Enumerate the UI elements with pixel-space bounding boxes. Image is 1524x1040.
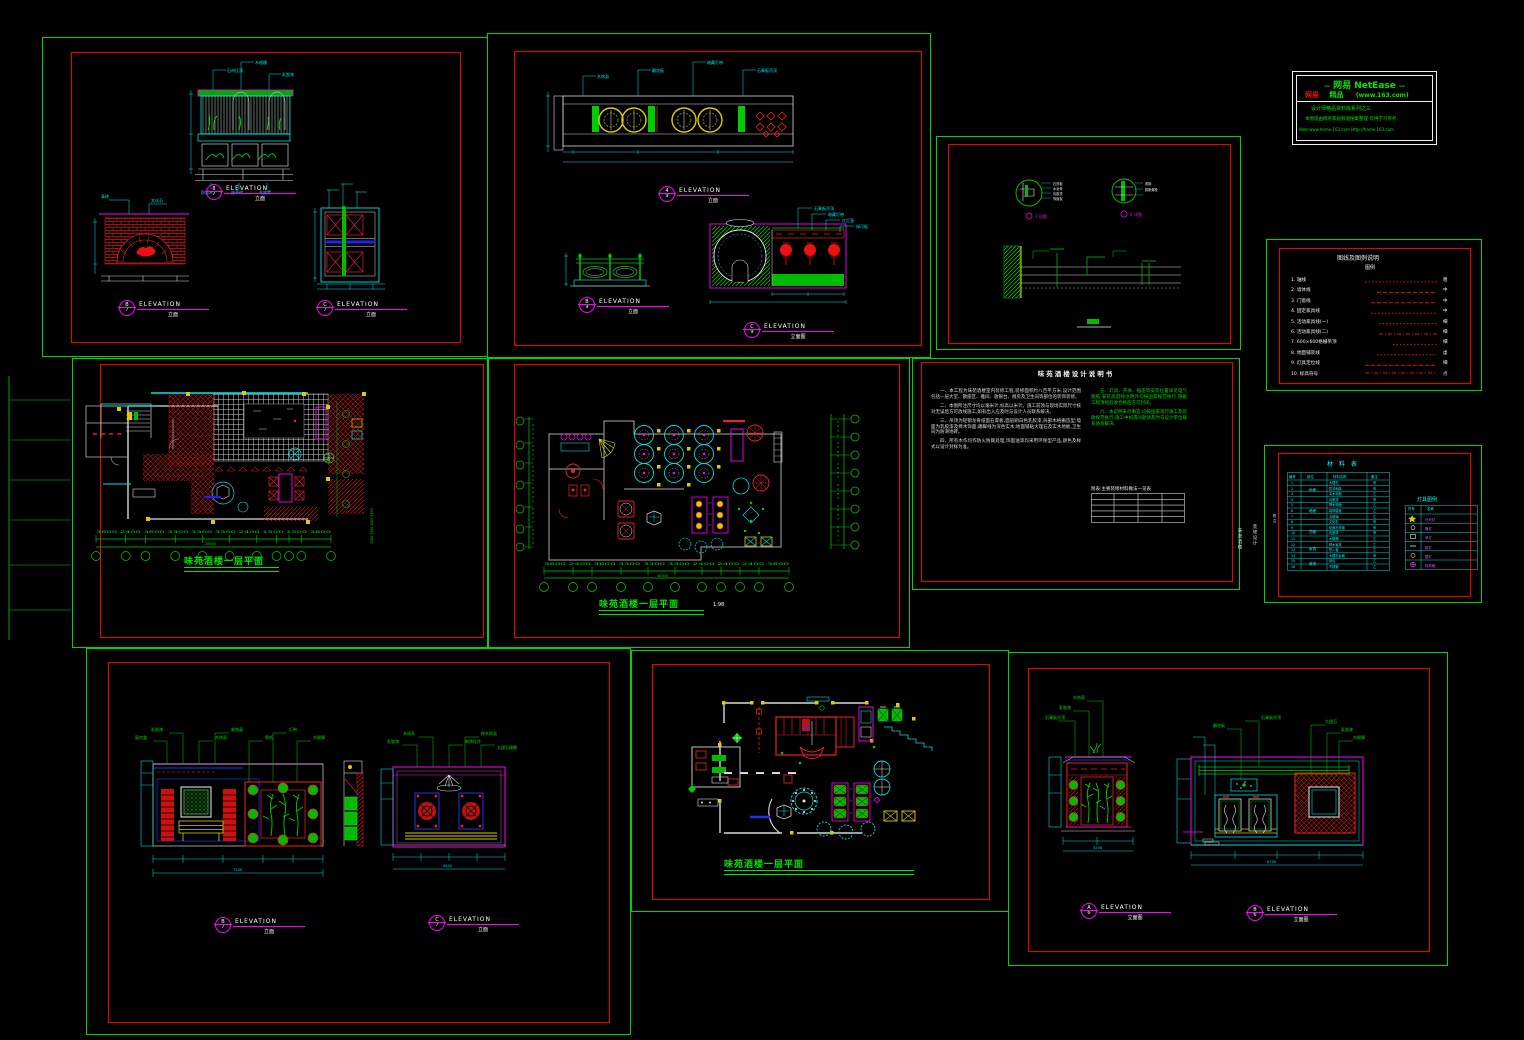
- elevation-scale: 立面图: [1265, 915, 1337, 923]
- svg-text:青砖: 青砖: [101, 193, 109, 199]
- booths: [692, 497, 728, 533]
- symbol-fluorescent: [1408, 515, 1416, 522]
- svg-text:角钢: 角钢: [1145, 181, 1151, 186]
- svg-text:木饰面: 木饰面: [1073, 694, 1085, 700]
- left-reference-dims: [4, 370, 74, 650]
- title-block-divider: [1297, 101, 1432, 102]
- sheet-elevations-3: 窗帘盒 乳胶漆 木饰面 装饰画 壁纸 灯带 木踢脚 7200: [86, 648, 631, 1035]
- cabinet-elevation: [313, 184, 385, 289]
- elevation-bubble: B7: [215, 917, 231, 933]
- booth-seating: [832, 783, 870, 821]
- schedule-zone-wall: 墙面: [1309, 509, 1316, 514]
- side-label-type: 装修设计: [1251, 524, 1257, 546]
- svg-text:乳胶漆: 乳胶漆: [1053, 191, 1063, 196]
- elevation-bubble: B7: [119, 300, 135, 316]
- svg-text:乳胶漆: 乳胶漆: [1341, 726, 1353, 732]
- legend-header-sym: 符号: [1408, 506, 1415, 511]
- elevation-label: B6 ELEVATION立面图: [1247, 905, 1337, 923]
- elevation-label: C7 ELEVATION立面: [317, 300, 407, 318]
- svg-text:木龙骨: 木龙骨: [1053, 186, 1063, 191]
- sheet-elevations-2: 木饰面 雕花板 暗藏灯带 石膏板吊顶: [487, 33, 931, 358]
- svg-text:1500 2900 2900 4300 2900 1200: 1500 2900 2900 4300 2900 1200: [836, 421, 840, 541]
- svg-text:28500: 28500: [205, 542, 216, 546]
- cad-canvas: 石材压顶 木格栅 乳胶漆 防腐木 嵌草砖 木座凳 青砖 文化石: [0, 0, 1524, 1040]
- svg-text:装饰挂件: 装饰挂件: [465, 738, 481, 744]
- detail-circle-2: 角钢 膨胀螺栓 2 详图: [1112, 179, 1159, 217]
- leader-annotations: [153, 733, 311, 782]
- elevation-title: ELEVATION: [762, 322, 834, 332]
- svg-text:大理石踢脚: 大理石踢脚: [497, 744, 517, 750]
- private-room: [859, 707, 932, 751]
- yellow-base-stripes: [405, 833, 497, 839]
- lanterns: [780, 243, 840, 265]
- cabinet-doors: [1215, 795, 1277, 837]
- svg-text:乳胶漆: 乳胶漆: [387, 738, 399, 744]
- svg-text:乳胶漆: 乳胶漆: [151, 726, 163, 732]
- service-wall-elevation: 雕花板 石膏板吊顶 大理石 乳胶漆 木踢脚 8700: [1177, 714, 1365, 865]
- svg-text:木踢脚: 木踢脚: [1353, 734, 1365, 740]
- svg-text:窗帘盒: 窗帘盒: [135, 734, 147, 740]
- svg-text:3300 3300 4200 3300: 3300 3300 4200 3300: [370, 509, 374, 545]
- svg-text:雕花板: 雕花板: [1213, 722, 1225, 728]
- elevation-bubble: C9: [744, 322, 760, 338]
- schedule-zone-floor: 地面: [1309, 488, 1316, 493]
- svg-text:木线条: 木线条: [403, 730, 415, 736]
- schedule-header-zone: 部位: [1307, 474, 1314, 479]
- svg-text:乳胶漆: 乳胶漆: [1059, 704, 1071, 710]
- plan-title-underline: [599, 610, 704, 615]
- brand-dash-left: —: [1324, 83, 1330, 90]
- sheet-details: 石膏板 木龙骨 乳胶漆 饰面板 1 详图 角钢 膨胀螺栓 2 详图: [936, 136, 1241, 350]
- sheet-furniture-plan: 味苑酒楼一层平面: [631, 650, 1009, 912]
- elevation-scale: 立面: [224, 194, 296, 202]
- notes-title: 味苑酒楼设计说明书: [913, 368, 1239, 378]
- svg-text:石膏板吊顶: 石膏板吊顶: [1261, 714, 1281, 720]
- dims-bottom: 3600 2400 3600 3300 3300 3300 2400 2400 …: [540, 562, 794, 592]
- svg-text:1 详图: 1 详图: [1035, 213, 1047, 219]
- elevation-bubble: C7: [429, 915, 445, 931]
- svg-text:红灯笼: 红灯笼: [842, 217, 854, 223]
- svg-text:2 详图: 2 详图: [1130, 211, 1142, 217]
- elevation-bubble: B9: [579, 297, 595, 313]
- svg-text:木格栅: 木格栅: [255, 59, 267, 65]
- svg-text:暗藏灯带: 暗藏灯带: [828, 211, 844, 217]
- elevation-scale: 立面图: [762, 332, 834, 340]
- schedule-side-note: 附注: [1273, 514, 1278, 523]
- moon-gate-elevation: 石膏板吊顶 暗藏灯带 红灯笼 绿可板: [710, 205, 868, 304]
- bamboo-panel: [245, 782, 321, 846]
- svg-text:30300: 30300: [657, 574, 668, 578]
- plan-title-underline: [184, 567, 279, 572]
- elevation-scale: 立面: [233, 927, 305, 935]
- elevation-title: ELEVATION: [224, 184, 296, 194]
- dimension-chain-bottom: 3600 2400 3600 3300 3300 3300 2400 1500 …: [92, 509, 375, 561]
- tb-line4: 本图纸由网易家居频道搜集整理 仅供学习参考: [1305, 116, 1396, 122]
- elevation-label: B9 ELEVATION立面: [579, 297, 669, 315]
- notes-right-column: 五、灯具、开关、插座等安装位置详见电气图纸,安装高度除注明外均按国家规范执行,隐…: [1091, 389, 1187, 427]
- tb-line5: Web:www.home.163.com Http://home.163.com: [1299, 127, 1394, 132]
- elevation-scale: 立面: [597, 307, 669, 315]
- elevation-bubble: B6: [1247, 905, 1263, 921]
- side-label-project: 味苑酒楼: [1236, 528, 1242, 550]
- sheet-elevations-1: 石材压顶 木格栅 乳胶漆 防腐木 嵌草砖 木座凳 青砖 文化石: [42, 37, 488, 357]
- svg-text:灯带: 灯带: [289, 726, 297, 732]
- screen-elevation: 3200 石膏板吊顶 乳胶漆 木饰面: [1045, 694, 1135, 851]
- long-wall-elevation: 木饰面 雕花板 暗藏灯带 石膏板吊顶: [546, 59, 793, 162]
- symbol-pendant: [1411, 535, 1416, 539]
- svg-text:暗藏灯带: 暗藏灯带: [707, 59, 723, 65]
- symbol-exhaust-fan: [1411, 562, 1416, 567]
- reception-tables: [561, 434, 591, 451]
- sheet-design-notes: 味苑酒楼设计说明书 一、本工程为味苑酒楼室内装修工程,装修面积约八百平方米,设计…: [912, 358, 1240, 590]
- elevation-label: C9 ELEVATION立面图: [744, 322, 834, 340]
- svg-text:壁纸: 壁纸: [265, 734, 273, 740]
- svg-text:文化石: 文化石: [151, 197, 163, 203]
- svg-text:木饰面: 木饰面: [215, 734, 227, 740]
- notes-paragraph: 三、吊顶为轻钢龙骨纸面石膏板,面层刷白色乳胶漆,局部木格栅造型;墙面为乳胶漆及榉…: [931, 419, 1081, 437]
- title-block: — 网易 NetEase — 网易 精品 (www.163.com) 设计师精品…: [1292, 71, 1437, 145]
- elevation-title: ELEVATION: [447, 915, 519, 925]
- dims-right: 1500 2900 2900 4300 2900 1200: [831, 414, 859, 549]
- sheet-i-drawing: 窗帘盒 乳胶漆 木饰面 装饰画 壁纸 灯带 木踢脚 7200: [87, 649, 632, 1036]
- svg-text:石材压顶: 石材压顶: [227, 67, 243, 73]
- elevation-title: ELEVATION: [233, 917, 305, 927]
- sub-mid: 精品: [1329, 91, 1343, 99]
- sheet-material-schedule: 材 料 表 编号 部位 材料名称 备注 1 2 3 4 5 6 7 8 9 10…: [1264, 445, 1482, 603]
- brick-arch-elevation: 青砖 文化石: [93, 193, 189, 281]
- bar-elevation: 石材压顶 木格栅 乳胶漆 防腐木 嵌草砖 木座凳: [189, 59, 294, 195]
- plan-scale: 1:98: [713, 602, 724, 608]
- sheet-ceiling-plan: 2100 3300 2400 2400 3300 2100 1500 2900 …: [488, 358, 910, 648]
- sheet-c-drawing: 石膏板 木龙骨 乳胶漆 饰面板 1 详图 角钢 膨胀螺栓 2 详图: [937, 137, 1242, 351]
- lighting-legend-title: 灯具图例: [1417, 496, 1437, 503]
- svg-text:木饰面: 木饰面: [597, 73, 609, 79]
- svg-text:7200: 7200: [233, 868, 243, 872]
- right-wall-elevation: 乳胶漆 木线条 装饰挂件 榉木饰面 大理石踢脚 4600: [381, 730, 517, 869]
- ceiling-fans: [635, 426, 721, 487]
- svg-text:4600: 4600: [443, 864, 453, 868]
- sub-site: (www.163.com): [1356, 92, 1409, 99]
- special-medallions: [723, 421, 782, 494]
- elevation-title: ELEVATION: [137, 300, 209, 310]
- svg-text:大理石: 大理石: [1325, 718, 1337, 724]
- svg-text:装饰画: 装饰画: [231, 726, 243, 732]
- schedule-header-no: 编号: [1289, 474, 1296, 479]
- elevation-title: ELEVATION: [1099, 903, 1171, 913]
- elevation-label: B7 ELEVATION立面: [215, 917, 305, 935]
- svg-text:8700: 8700: [1267, 860, 1277, 864]
- notes-paragraph: 四、所有木作均作防火防腐处理,饰面油漆均采用环保型产品,颜色及样式以设计封样为准…: [931, 439, 1081, 451]
- notes-table: [1091, 493, 1185, 523]
- svg-text:3600 2400 3600 3300 3300 3300: 3600 2400 3600 3300 3300 3300 2400 1500 …: [96, 530, 331, 534]
- dims-left: 2100 3300 2400 2400 3300 2100: [516, 417, 535, 551]
- elevation-scale: 立面: [335, 310, 407, 318]
- schedule-title: 材 料 表: [1327, 459, 1359, 468]
- svg-text:乳胶漆: 乳胶漆: [282, 71, 294, 77]
- elevation-label: A6 ELEVATION立面图: [1081, 903, 1171, 921]
- svg-text:3200: 3200: [1093, 846, 1103, 850]
- elevation-label: B7 ELEVATION立面: [119, 300, 209, 318]
- brand-subline: 网易 精品 (www.163.com): [1305, 90, 1409, 100]
- schedule-col-note: 甲 甲 乙 甲 乙 乙 乙 甲 甲 甲 乙 乙 乙 甲 乙 乙: [1373, 481, 1385, 571]
- svg-text:2100 3300 2400 2400 3300 2100: 2100 3300 2400 2400 3300 2100: [531, 424, 535, 544]
- narrow-section: [344, 761, 363, 846]
- svg-text:石膏板: 石膏板: [1053, 181, 1063, 186]
- svg-text:雕花板: 雕花板: [652, 67, 664, 73]
- symbol-downlight: [1411, 526, 1415, 530]
- legend-codes: 粗 中 中 中 细 细 细 虚 细 点: [1443, 276, 1463, 380]
- notes-left-column: 一、本工程为味苑酒楼室内装修工程,装修面积约八百平方米,设计范围包括一层大堂、散…: [931, 389, 1081, 451]
- schedule-col-name: 大理石 防滑地砖 实木地板 乳胶漆 榉木饰面 装饰壁纸 清玻璃 文化石 纸面石膏…: [1329, 481, 1365, 571]
- ornate-panel: [415, 793, 483, 829]
- section-detail: [1004, 246, 1181, 327]
- elevation-title: ELEVATION: [677, 186, 749, 196]
- notes-table-caption: 附表:主要装修材料做法一览表: [1091, 486, 1151, 492]
- svg-text:膨胀螺栓: 膨胀螺栓: [1145, 187, 1159, 192]
- elevation-label: C7 ELEVATION立面: [429, 915, 519, 933]
- plan-title: 味苑酒楼一层平面: [599, 597, 679, 610]
- plan-title-underline: [724, 870, 914, 875]
- chandelier: [437, 775, 461, 791]
- schedule-zone-ceiling: 顶面: [1309, 530, 1316, 535]
- notes-paragraph: 二、本图所注尺寸均以毫米计,标高以米计。施工前须与现场实际尺寸核对无误后方可放线…: [931, 404, 1081, 416]
- notes-paragraph: 一、本工程为味苑酒楼室内装修工程,装修面积约八百平方米,设计范围包括一层大堂、散…: [931, 389, 1081, 401]
- elevation-title: ELEVATION: [1265, 905, 1337, 915]
- plan-title: 味苑酒楼一层平面: [184, 554, 264, 567]
- sheet-floor-plan-finishes: 3600 2400 3600 3300 3300 3300 2400 1500 …: [72, 358, 488, 648]
- elevation-scale: 立面图: [1099, 913, 1171, 921]
- legend-header-name: 名称: [1427, 506, 1434, 511]
- schedule-header-name: 材料名称: [1333, 474, 1347, 479]
- left-wall-elevation: 窗帘盒 乳胶漆 木饰面 装饰画 壁纸 灯带 木踢脚 7200: [135, 726, 325, 877]
- notes-paragraph-green: 六、本说明未尽事宜,均按国家现行施工及验收规范执行,施工中如遇问题请及时与设计单…: [1091, 410, 1187, 428]
- elevation-bubble: 49: [659, 186, 675, 202]
- detail-circle-1: 石膏板 木龙骨 乳胶漆 饰面板 1 详图: [1016, 180, 1063, 219]
- notes-paragraph-green: 五、灯具、开关、插座等安装位置详见电气图纸,安装高度除注明外均按国家规范执行,隐…: [1091, 389, 1187, 407]
- leader-annotations: [403, 737, 495, 767]
- schedule-zone-other: 其他: [1309, 562, 1316, 567]
- stair-run: [884, 727, 932, 751]
- svg-text:石膏板吊顶: 石膏板吊顶: [814, 205, 834, 211]
- elevation-label: 49 ELEVATION立面: [659, 186, 749, 204]
- left-room-items: [559, 464, 603, 518]
- sheet-line-legend: 图线及图例说明 图例 1. 轴线 2. 墙体线 3. 门窗线 4. 固定家具线 …: [1266, 239, 1482, 391]
- title-block-inner: — 网易 NetEase — 网易 精品 (www.163.com) 设计师精品…: [1296, 75, 1433, 141]
- legend-names: 日光灯 筒灯 吊灯 射灯 壁灯 排风扇: [1425, 516, 1465, 571]
- red-lattice-panel: [1295, 773, 1355, 833]
- elevation-bubble: 87: [206, 184, 222, 200]
- elevation-label: 87 ELEVATION立面: [206, 184, 296, 202]
- elevation-scale: 立面: [447, 925, 519, 933]
- stairs: [126, 411, 150, 431]
- lounge-room: [688, 733, 742, 806]
- symbol-wall-lamp: [1411, 553, 1415, 557]
- plan-title: 味苑酒楼一层平面: [724, 857, 804, 870]
- sheet-e-drawing: 3600 2400 3600 3300 3300 3300 2400 1500 …: [73, 359, 489, 649]
- bar-counter: [776, 717, 854, 759]
- railing-elevation: [564, 253, 650, 286]
- brand-dash-right: —: [1399, 83, 1405, 90]
- svg-text:石膏板吊顶: 石膏板吊顶: [1045, 714, 1065, 720]
- svg-text:石膏板吊顶: 石膏板吊顶: [757, 67, 777, 73]
- svg-text:3600 2400 3600 3300 3300 3300: 3600 2400 3600 3300 3300 3300 2400 2400 …: [544, 562, 789, 566]
- sheet-elevations-4: 3200 石膏板吊顶 乳胶漆 木饰面: [1008, 652, 1448, 966]
- stairs-fan: [599, 439, 615, 458]
- elevation-bubble: A6: [1081, 903, 1097, 919]
- svg-text:木踢脚: 木踢脚: [313, 734, 325, 740]
- dining-tables: [618, 497, 772, 553]
- schedule-zone-furniture: 家具: [1309, 547, 1316, 552]
- sheet-f-drawing: 2100 3300 2400 2400 3300 2100 1500 2900 …: [489, 359, 911, 649]
- elevation-title: ELEVATION: [335, 300, 407, 310]
- sub-red: 网易: [1305, 91, 1319, 99]
- diamond-cluster: [756, 112, 786, 137]
- svg-text:绿可板: 绿可板: [856, 223, 868, 229]
- svg-text:饰面板: 饰面板: [1053, 196, 1063, 201]
- ceiling-grid: [214, 394, 328, 461]
- schedule-col-no: 1 2 3 4 5 6 7 8 9 10 11 12 13 14 15 16: [1291, 481, 1301, 571]
- elevation-bubble: C7: [317, 300, 333, 316]
- svg-text:榉木饰面: 榉木饰面: [481, 730, 497, 736]
- elevation-scale: 立面: [677, 196, 749, 204]
- sheet-k-drawing: 3200 石膏板吊顶 乳胶漆 木饰面: [1009, 653, 1449, 967]
- elevation-title: ELEVATION: [597, 297, 669, 307]
- tb-line3: 设计师精品资料库系列之三: [1311, 105, 1371, 112]
- schedule-header-note: 备注: [1371, 474, 1378, 479]
- bench: [179, 821, 223, 841]
- elevation-scale: 立面: [137, 310, 209, 318]
